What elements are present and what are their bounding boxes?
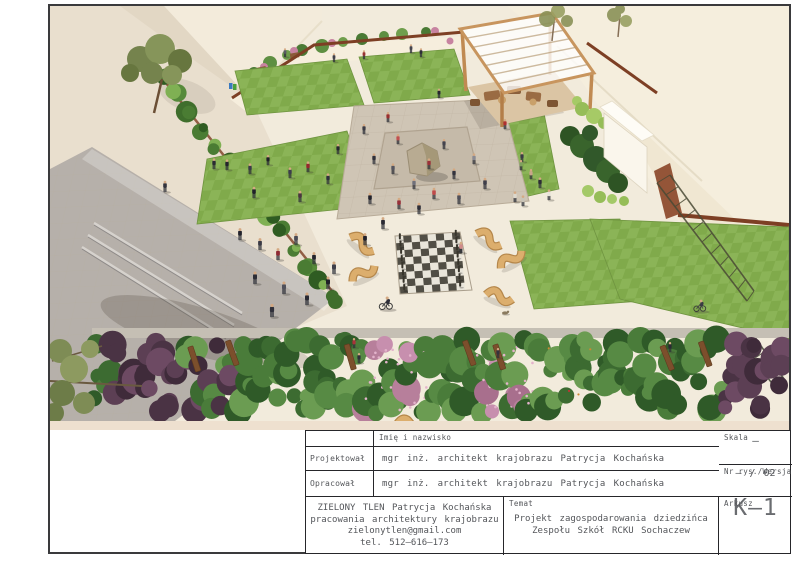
sheet-number-cell: Arkusz K—1	[719, 497, 792, 555]
scale-cell: Skala –	[719, 431, 792, 465]
designed-by-label: Projektował	[306, 447, 374, 471]
prepared-by-value: mgr inż. architekt krajobrazu Patrycja K…	[374, 471, 719, 497]
prepared-by-label: Opracował	[306, 471, 374, 497]
company-info: ZIELONY TLEN Patrycja Kochańska pracowan…	[306, 497, 504, 555]
company-tagline: pracowania architektury krajobrazu	[310, 515, 498, 527]
drawing-number-cell: Nr rys./Wersja – / 02	[719, 465, 792, 497]
company-email: zielonytlen@gmail.com	[348, 526, 462, 538]
subject-label: Temat	[509, 499, 533, 508]
scale-label: Skala	[724, 433, 748, 442]
company-name: ZIELONY TLEN Patrycja Kochańska	[318, 503, 492, 515]
empty-cell	[306, 431, 374, 447]
subject-cell: Temat Projekt zagospodarowania dziedzińc…	[504, 497, 719, 555]
drawing-sheet: Imię i nazwisko Projektował mgr inż. arc…	[0, 0, 800, 566]
lawn-panel	[359, 49, 470, 103]
name-column-header: Imię i nazwisko	[374, 431, 719, 447]
title-block: Imię i nazwisko Projektował mgr inż. arc…	[305, 430, 791, 554]
sheet-number-label: Arkusz	[724, 499, 753, 508]
designed-by-value: mgr inż. architekt krajobrazu Patrycja K…	[374, 447, 719, 471]
company-phone: tel. 512–616–173	[360, 538, 449, 550]
chess-board	[395, 230, 472, 294]
drawing-number-label: Nr rys./Wersja	[724, 467, 791, 476]
subject-text: Projekt zagospodarowania dziedzińca Zesp…	[504, 514, 718, 537]
courtyard-rendering	[50, 6, 789, 430]
